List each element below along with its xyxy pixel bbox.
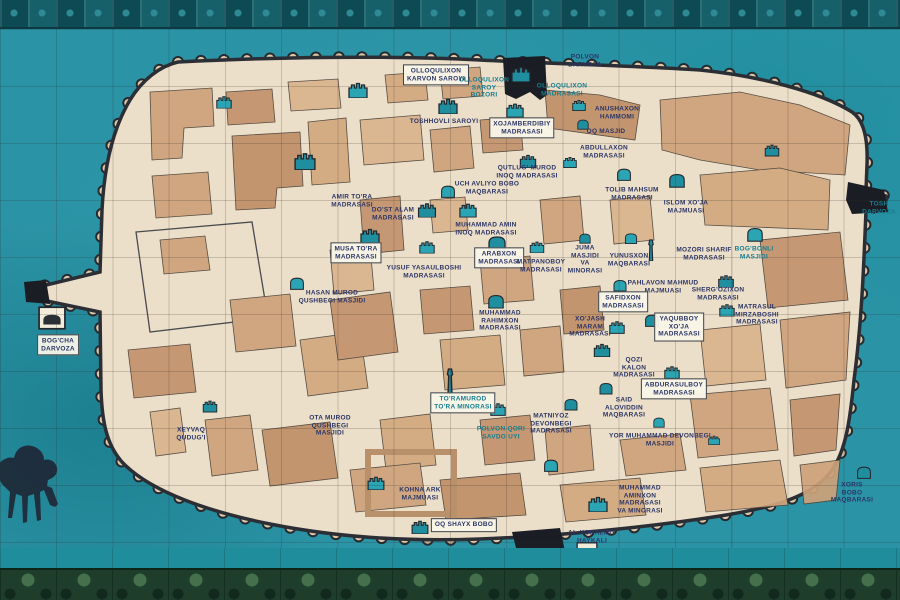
ornamental-border-bottom bbox=[0, 568, 900, 600]
ornamental-border-top bbox=[0, 0, 900, 29]
tosh-gate-shape bbox=[846, 182, 888, 214]
teal-strip-bottom bbox=[0, 548, 900, 568]
city-map-graphic bbox=[0, 0, 900, 600]
polvon-gate-shape bbox=[503, 56, 547, 100]
tile-map-mural: OLLOQULIXON KARVON SAROYIOLLOQULIXON SAR… bbox=[0, 0, 900, 600]
bogcha-gate-shape bbox=[24, 280, 50, 304]
camel-silhouette bbox=[0, 446, 58, 524]
